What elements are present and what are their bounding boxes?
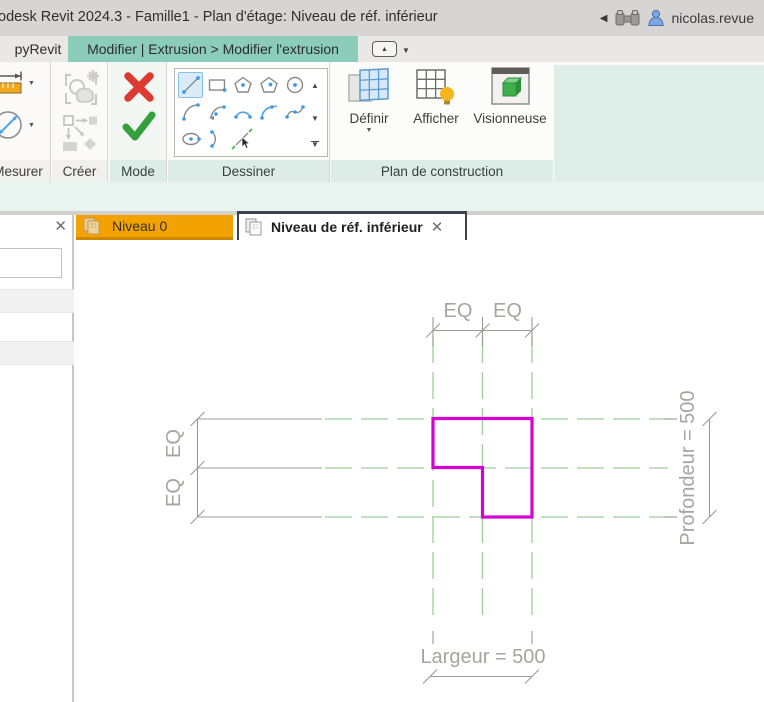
eq-label-top-2[interactable]: EQ bbox=[493, 300, 522, 322]
create-similar-button[interactable] bbox=[62, 114, 100, 154]
create-group-icon bbox=[60, 68, 102, 110]
panel-dessiner-label: Dessiner bbox=[222, 164, 275, 179]
draw-partial-ellipse-tool[interactable] bbox=[204, 126, 229, 152]
ribbon-tab-strip: pyRevit Modifier | Extrusion > Modifier … bbox=[0, 36, 764, 62]
ribbon-collapse-caret-icon[interactable]: ▼ bbox=[402, 46, 410, 55]
options-bar bbox=[0, 182, 764, 211]
ellipse-icon bbox=[180, 128, 202, 150]
spline-icon bbox=[284, 101, 306, 123]
draw-fillet-arc-tool[interactable] bbox=[178, 99, 203, 125]
polygon-icon bbox=[232, 74, 254, 96]
draw-circumscribed-polygon-tool[interactable] bbox=[256, 72, 281, 98]
draw-ellipse-tool[interactable] bbox=[178, 126, 203, 152]
panel-mesurer-label: Mesurer bbox=[0, 164, 43, 179]
user-avatar-icon[interactable] bbox=[647, 9, 665, 27]
panel-mode-label: Mode bbox=[121, 164, 155, 179]
panel-plan-label: Plan de construction bbox=[381, 164, 503, 179]
expand-palette-icon[interactable]: ▼ bbox=[311, 141, 319, 147]
width-dimension-label[interactable]: Largeur = 500 bbox=[420, 646, 545, 668]
tab-pyrevit[interactable]: pyRevit bbox=[8, 36, 68, 62]
cancel-sketch-button[interactable] bbox=[121, 69, 157, 105]
tab-modify-extrusion[interactable]: Modifier | Extrusion > Modifier l'extrus… bbox=[68, 36, 358, 62]
view-tab-label: Niveau de réf. inférieur bbox=[271, 219, 423, 235]
panel-dessiner: ▲ ▼ ▼ Dessiner bbox=[168, 62, 330, 182]
set-work-plane-button[interactable]: Définir ▼ bbox=[338, 66, 400, 134]
measure-tape-button[interactable]: ▼ bbox=[0, 70, 35, 96]
eq-label-left-2[interactable]: EQ bbox=[163, 478, 185, 507]
measure-tape-icon bbox=[0, 70, 26, 96]
dropdown-caret-icon: ▼ bbox=[366, 127, 373, 134]
draw-rectangle-tool[interactable] bbox=[204, 72, 229, 98]
search-binoculars-icon[interactable] bbox=[615, 9, 640, 27]
set-work-plane-icon bbox=[346, 66, 392, 108]
viewer-label: Visionneuse bbox=[473, 111, 546, 126]
panel-plan-construction: Définir ▼ Afficher bbox=[331, 62, 553, 182]
dropdown-caret-icon[interactable]: ▼ bbox=[28, 122, 35, 129]
draw-pick-lines-tool[interactable] bbox=[230, 126, 255, 152]
dropdown-caret-icon[interactable]: ▼ bbox=[28, 80, 35, 87]
draw-palette-scroll: ▲ ▼ ▼ bbox=[309, 69, 325, 156]
eq-label-top-1[interactable]: EQ bbox=[444, 300, 473, 322]
properties-palette: ✕ bbox=[0, 215, 74, 702]
draw-tool-palette: ▲ ▼ ▼ bbox=[174, 68, 328, 157]
show-work-plane-button[interactable]: Afficher bbox=[403, 66, 469, 126]
ribbon-collapse-button[interactable]: ▲ bbox=[372, 41, 397, 57]
tangent-arc-icon bbox=[258, 101, 280, 123]
red-x-icon bbox=[121, 69, 157, 105]
dimension-lines[interactable] bbox=[191, 317, 717, 684]
draw-line-tool[interactable] bbox=[178, 72, 203, 98]
show-work-plane-icon bbox=[414, 66, 458, 108]
title-bar: odesk Revit 2024.3 - Famille1 - Plan d'é… bbox=[0, 0, 764, 36]
draw-three-point-arc-tool[interactable] bbox=[230, 99, 255, 125]
polygon-center-icon bbox=[258, 74, 280, 96]
ribbon-empty-area bbox=[554, 65, 764, 182]
view-tab-niveau-0[interactable]: Niveau 0 bbox=[76, 215, 233, 240]
titlebar-right-cluster: ◀ nicolas.revue bbox=[600, 0, 754, 36]
scroll-down-icon[interactable]: ▼ bbox=[311, 114, 319, 123]
fillet-arc-icon bbox=[180, 101, 202, 123]
view-tab-label: Niveau 0 bbox=[112, 218, 167, 234]
line-icon bbox=[180, 74, 202, 96]
viewer-icon bbox=[488, 66, 532, 108]
center-arc-icon bbox=[206, 101, 228, 123]
window-title: odesk Revit 2024.3 - Famille1 - Plan d'é… bbox=[0, 9, 438, 25]
scroll-up-icon[interactable]: ▲ bbox=[311, 81, 319, 90]
floor-plan-doc-icon bbox=[83, 217, 100, 235]
set-work-plane-label: Définir bbox=[349, 111, 388, 126]
pick-lines-icon bbox=[231, 128, 255, 150]
palette-close-icon[interactable]: ✕ bbox=[54, 217, 67, 235]
ribbon: ▼ ▼ Mesurer bbox=[0, 62, 764, 182]
rectangle-icon bbox=[206, 74, 228, 96]
panel-creer: Créer bbox=[52, 62, 108, 182]
panel-mesurer: ▼ ▼ Mesurer bbox=[0, 62, 51, 182]
palette-row bbox=[0, 289, 74, 313]
create-group-button[interactable] bbox=[60, 68, 102, 110]
green-check-icon bbox=[122, 110, 156, 142]
circle-icon bbox=[284, 74, 306, 96]
type-selector-field[interactable] bbox=[0, 248, 62, 278]
draw-spline-tool[interactable] bbox=[282, 99, 307, 125]
panel-mode: Mode bbox=[110, 62, 167, 182]
floor-plan-view[interactable]: EQ EQ EQ EQ Profondeur = 500 Largeur = 5… bbox=[76, 240, 764, 702]
view-tab-niveau-ref-inferieur[interactable]: Niveau de réf. inférieur ✕ bbox=[237, 211, 467, 240]
draw-circle-tool[interactable] bbox=[282, 72, 307, 98]
draw-center-ends-arc-tool[interactable] bbox=[204, 99, 229, 125]
measure-diameter-button[interactable]: ▼ bbox=[0, 108, 35, 142]
view-tab-close-icon[interactable]: ✕ bbox=[431, 218, 444, 236]
eq-label-left-1[interactable]: EQ bbox=[163, 429, 185, 458]
collapse-arrow-icon[interactable]: ◀ bbox=[600, 13, 608, 24]
panel-creer-label: Créer bbox=[63, 164, 97, 179]
three-point-arc-icon bbox=[232, 101, 254, 123]
viewer-button[interactable]: Visionneuse bbox=[470, 66, 550, 126]
draw-tangent-arc-tool[interactable] bbox=[256, 99, 281, 125]
signed-in-user[interactable]: nicolas.revue bbox=[672, 10, 755, 26]
draw-inscribed-polygon-tool[interactable] bbox=[230, 72, 255, 98]
finish-sketch-button[interactable] bbox=[122, 110, 156, 142]
drawing-area[interactable]: Niveau 0 Niveau de réf. inférieur ✕ bbox=[76, 215, 764, 702]
depth-dimension-label[interactable]: Profondeur = 500 bbox=[677, 390, 699, 545]
reference-planes[interactable] bbox=[325, 336, 668, 624]
partial-ellipse-icon bbox=[206, 128, 228, 150]
revit-window: odesk Revit 2024.3 - Famille1 - Plan d'é… bbox=[0, 0, 764, 702]
measure-diameter-icon bbox=[0, 108, 26, 142]
show-work-plane-label: Afficher bbox=[413, 111, 459, 126]
floor-plan-doc-icon bbox=[245, 218, 262, 236]
palette-row bbox=[0, 341, 74, 365]
create-similar-icon bbox=[62, 114, 100, 154]
